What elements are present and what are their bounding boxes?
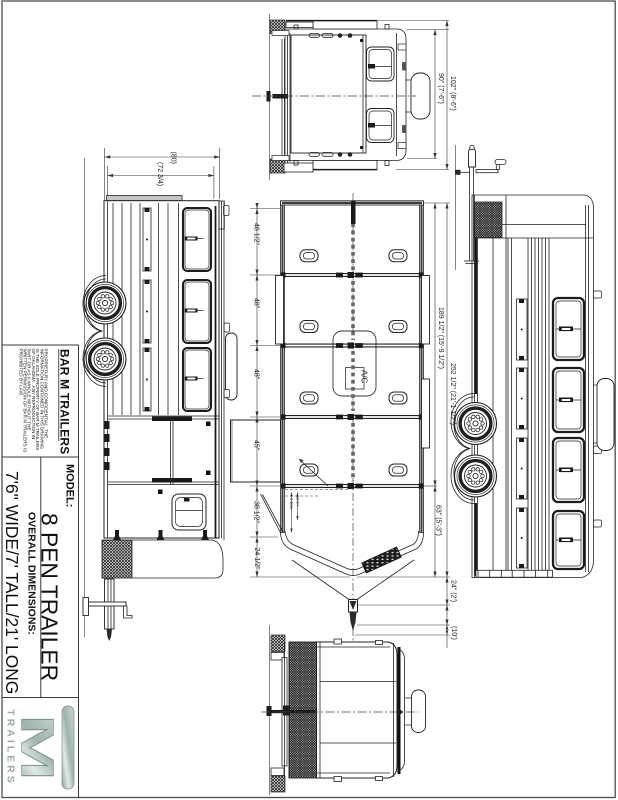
svg-text:PROHIBITED BY LAW.: PROHIBITED BY LAW. (18, 349, 23, 396)
svg-text:(10'): (10') (450, 626, 457, 640)
svg-text:MODEL:: MODEL: (63, 464, 75, 507)
svg-text:A/C: A/C (360, 370, 369, 384)
svg-text:OVERALL DIMENSIONS:: OVERALL DIMENSIONS: (25, 512, 37, 635)
svg-text:24 1/2": 24 1/2" (253, 548, 260, 570)
svg-text:3' BOX: 3' BOX (289, 498, 293, 510)
svg-text:M: M (12, 714, 63, 781)
svg-text:48": 48" (253, 369, 260, 380)
svg-text:45": 45" (253, 440, 260, 451)
svg-text:63" (5'-3"): 63" (5'-3") (435, 505, 442, 536)
svg-text:90" (7'-6"): 90" (7'-6") (437, 73, 444, 104)
svg-text:7'6" WIDE/7' TALL/21' LONG: 7'6" WIDE/7' TALL/21' LONG (2, 471, 22, 694)
svg-text:38 1/2": 38 1/2" (253, 501, 260, 523)
svg-text:(72 3/4): (72 3/4) (156, 162, 163, 186)
svg-text:8 PEN TRAILER: 8 PEN TRAILER (37, 513, 63, 681)
svg-text:102" (8'-6"): 102" (8'-6") (449, 76, 456, 111)
svg-text:48 1/2": 48 1/2" (253, 223, 260, 245)
svg-text:TRAILERS: TRAILERS (5, 709, 17, 786)
svg-text:24" (2'): 24" (2') (450, 580, 457, 602)
svg-text:(80): (80) (170, 152, 177, 164)
svg-text:189 1/2" (15'-9 1/2"): 189 1/2" (15'-9 1/2") (437, 307, 444, 369)
svg-text:BAR M TRAILERS: BAR M TRAILERS (58, 349, 72, 454)
svg-text:48": 48" (253, 298, 260, 309)
svg-text:252 1/2" (21'-1 1/2"): 252 1/2" (21'-1 1/2") (449, 363, 456, 425)
svg-text:28 3/4: 28 3/4 (296, 496, 300, 506)
